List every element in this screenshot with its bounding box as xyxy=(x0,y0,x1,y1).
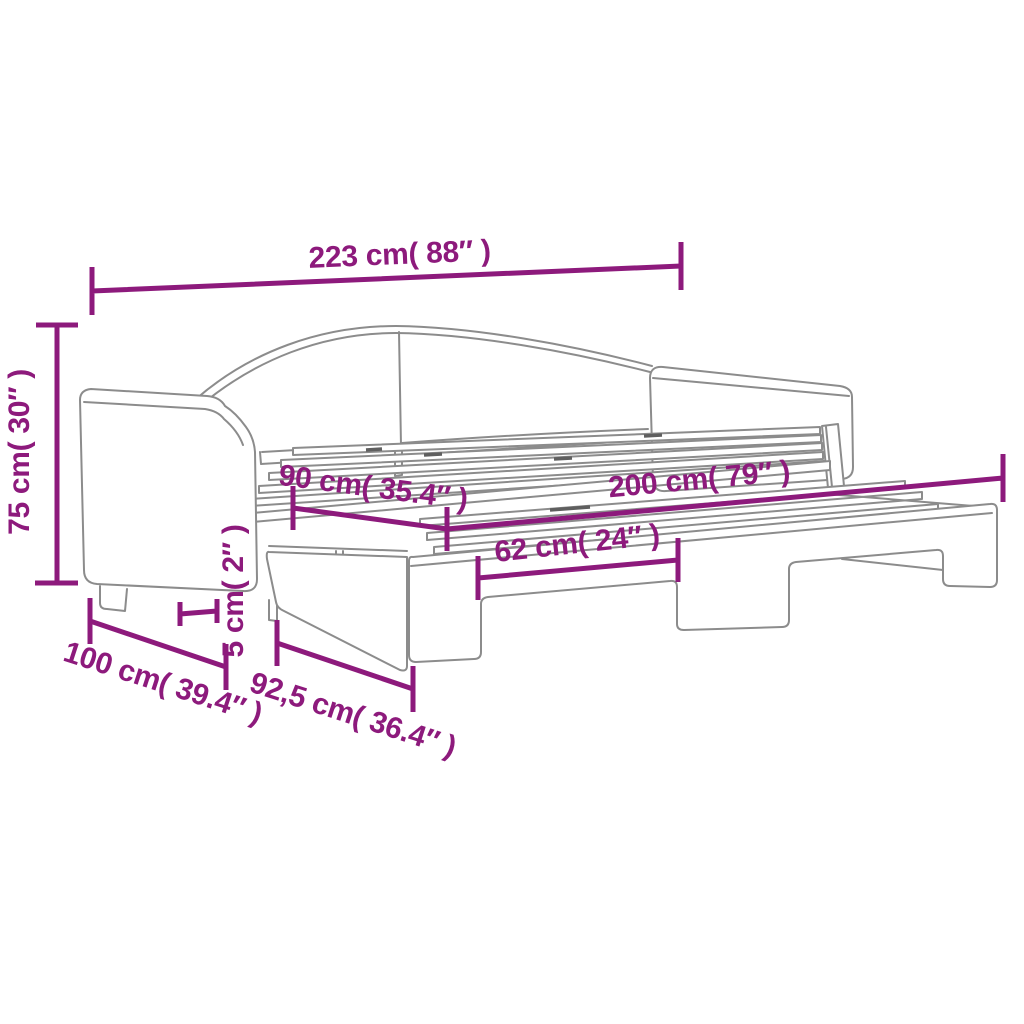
backrest-seam xyxy=(399,332,401,446)
dimension-label: 92,5 cm( 36.4″ ) xyxy=(246,666,460,764)
trundle-panel-top-edge xyxy=(269,546,407,551)
trundle-end-panel xyxy=(267,546,407,671)
left-armrest-leg xyxy=(100,586,127,611)
dimension-total-length: 223 cm( 88″ ) xyxy=(92,234,681,315)
diagram-canvas: 223 cm( 88″ ) 75 cm( 30″ ) 90 cm( 35.4″ … xyxy=(0,0,1024,1024)
dimension-label: 75 cm( 30″ ) xyxy=(3,369,36,535)
dimension-label: 5 cm( 2″ ) xyxy=(217,524,250,657)
dimension-diagram: 223 cm( 88″ ) 75 cm( 30″ ) 90 cm( 35.4″ … xyxy=(0,0,1024,1024)
backrest-outer-arc xyxy=(196,326,652,399)
dimension-label: 223 cm( 88″ ) xyxy=(308,234,491,275)
clearance-bracket xyxy=(180,599,217,626)
trundle-support-line xyxy=(842,559,943,570)
backrest-inner-arc xyxy=(200,333,650,406)
trundle-panel xyxy=(267,552,407,671)
dimension-line xyxy=(35,325,78,583)
dimension-total-height: 75 cm( 30″ ) xyxy=(3,325,78,583)
